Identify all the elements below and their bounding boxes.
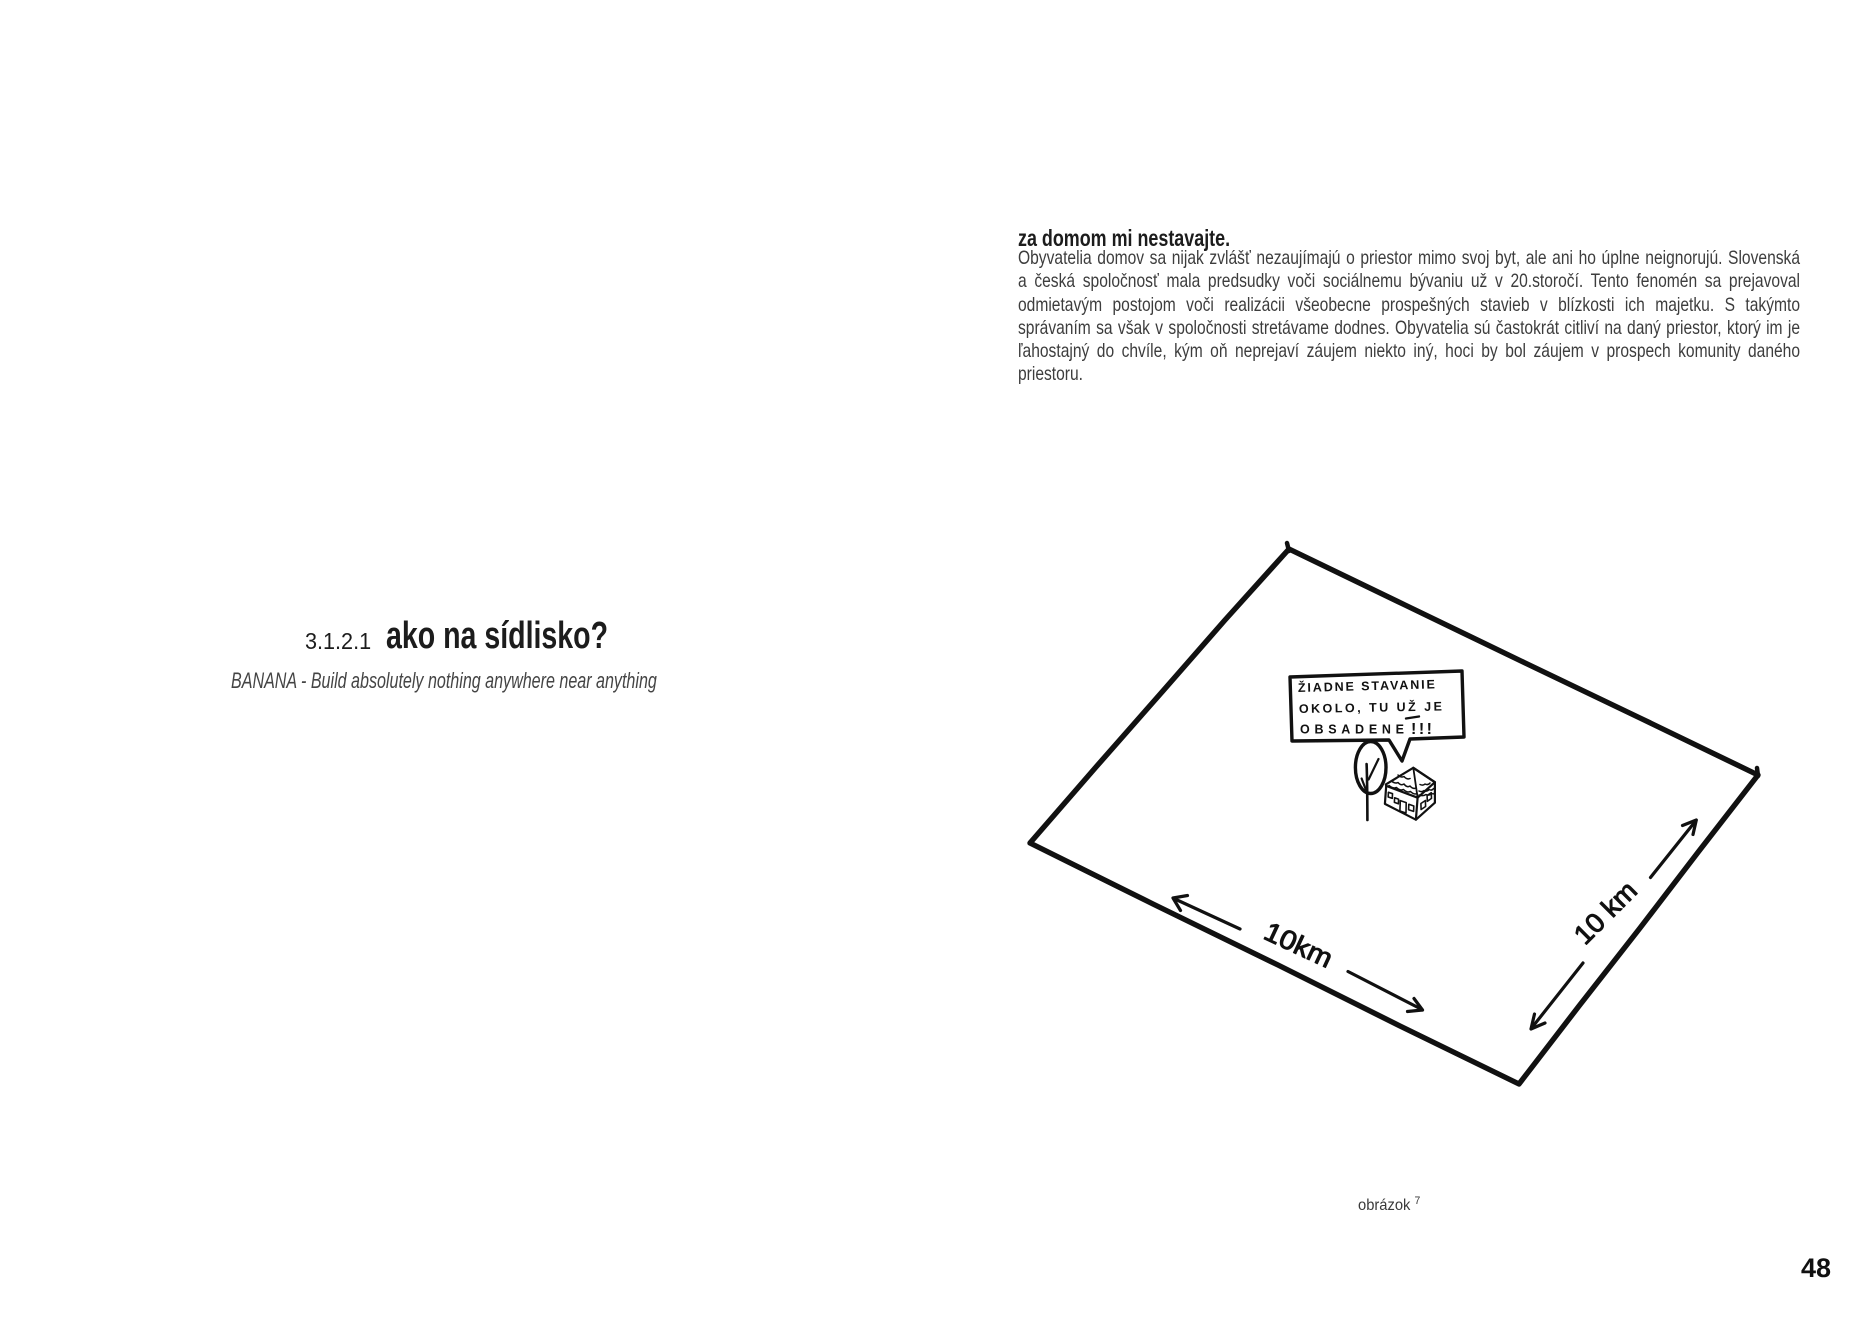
svg-text:OKOLO, TU UŽ JE: OKOLO, TU UŽ JE bbox=[1299, 699, 1442, 716]
svg-text:10km: 10km bbox=[1259, 916, 1337, 974]
svg-text:!!!: !!! bbox=[1411, 721, 1434, 738]
svg-text:OBSADENE: OBSADENE bbox=[1300, 723, 1404, 737]
svg-text:ŽIADNE STAVANIE: ŽIADNE STAVANIE bbox=[1298, 676, 1435, 695]
